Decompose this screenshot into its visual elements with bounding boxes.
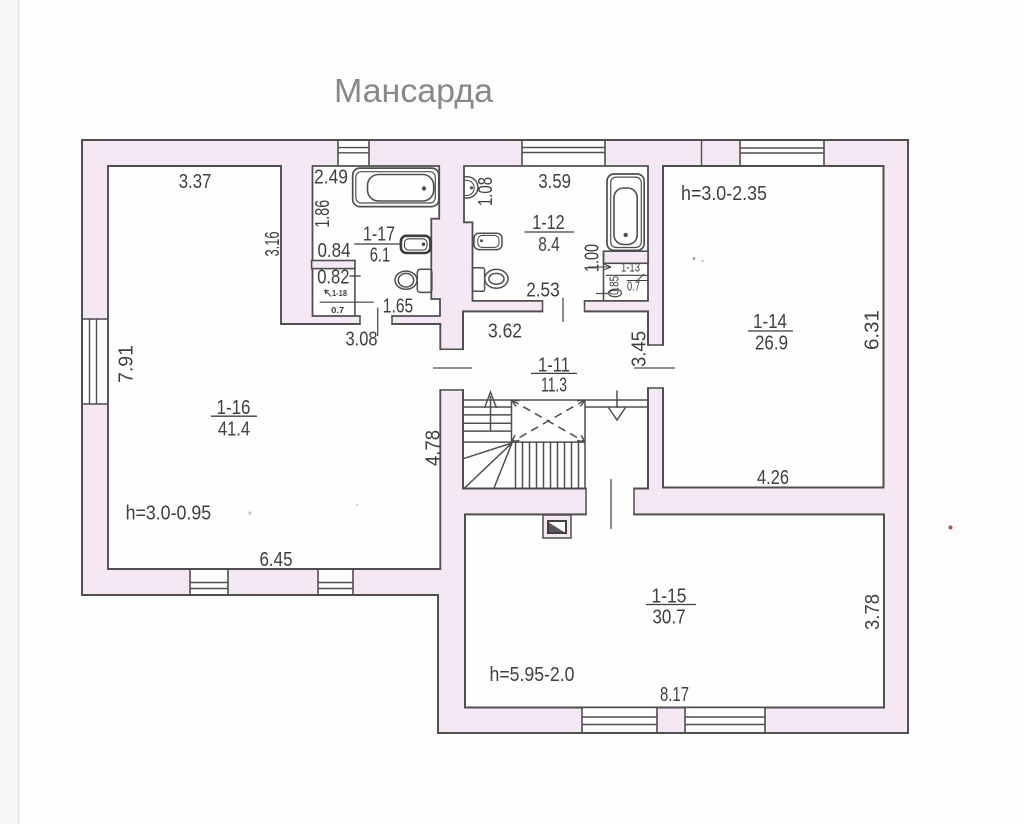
svg-text:6.31: 6.31 [861,310,883,350]
svg-text:4.26: 4.26 [757,467,789,489]
svg-text:2.53: 2.53 [526,279,560,301]
svg-text:1-18: 1-18 [332,289,348,298]
svg-text:7.91: 7.91 [115,345,137,383]
svg-text:3.08: 3.08 [346,329,378,351]
svg-text:1.00: 1.00 [581,244,603,272]
svg-text:h=5.95-2.0: h=5.95-2.0 [490,664,575,686]
svg-text:3.59: 3.59 [538,171,571,193]
svg-text:1-16: 1-16 [217,397,251,419]
svg-text:4.78: 4.78 [422,430,444,466]
svg-text:26.9: 26.9 [755,332,788,354]
svg-text:0.85: 0.85 [607,276,622,295]
svg-text:1-13: 1-13 [621,260,640,275]
svg-text:1-12: 1-12 [532,212,565,234]
svg-text:1.08: 1.08 [475,177,497,206]
svg-text:1-14: 1-14 [753,311,787,333]
svg-text:11.3: 11.3 [541,374,567,396]
svg-text:2.49: 2.49 [314,166,348,188]
svg-text:3.16: 3.16 [262,232,284,257]
svg-text:6.45: 6.45 [260,549,293,571]
svg-text:1.65: 1.65 [383,295,413,317]
svg-text:h=3.0-2.35: h=3.0-2.35 [681,183,767,205]
svg-text:8.17: 8.17 [660,684,689,706]
svg-text:0.7: 0.7 [331,306,345,315]
svg-text:1.86: 1.86 [312,200,334,228]
svg-text:h=3.0-0.95: h=3.0-0.95 [126,503,212,525]
svg-text:3.37: 3.37 [179,171,212,193]
svg-text:3.78: 3.78 [862,594,884,630]
svg-text:3.62: 3.62 [488,321,522,343]
svg-text:Мансарда: Мансарда [334,72,494,109]
svg-text:3.45: 3.45 [628,331,650,367]
svg-text:8.4: 8.4 [538,234,560,256]
svg-text:30.7: 30.7 [653,606,686,628]
svg-text:41.4: 41.4 [218,418,250,440]
svg-text:1-17: 1-17 [363,223,395,245]
svg-text:0.82: 0.82 [317,267,349,289]
svg-text:0.84: 0.84 [318,240,351,262]
svg-text:6.1: 6.1 [370,244,391,266]
